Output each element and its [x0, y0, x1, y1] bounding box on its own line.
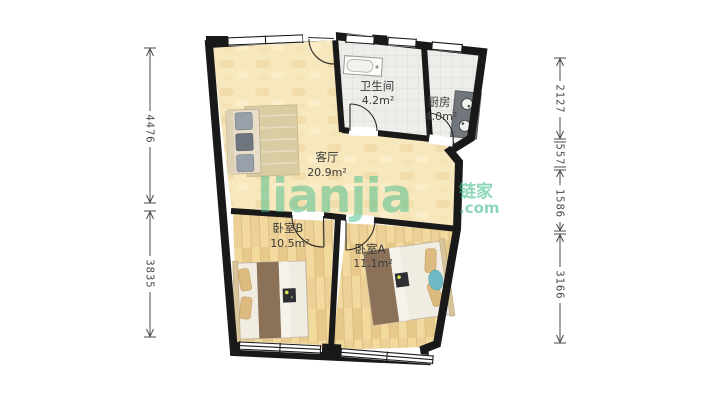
bedroom-b-area: 10.5m² [270, 237, 310, 250]
sofa-cushion [236, 154, 254, 172]
watermark: lianjia 链家 .com [257, 169, 500, 224]
dimension-right-2127: 2127 [554, 58, 567, 139]
dimension-right-3166: 3166 [554, 234, 567, 343]
wall-corner-post [206, 36, 228, 47]
bed-duvet [257, 262, 282, 339]
dimension-right-557: 557 [554, 142, 567, 167]
watermark-brand: lianjia [257, 169, 411, 224]
bathroom-label: 卫生间 [360, 79, 395, 93]
dim-value: 2127 [554, 84, 566, 113]
bed-tv [395, 272, 410, 288]
dimension-right-1586: 1586 [554, 170, 567, 231]
bedroom-a-label: 卧室A [355, 242, 386, 256]
watermark-domain-suffix: .com [459, 199, 500, 217]
dimension-left-4476: 4476 [144, 48, 157, 203]
dim-value: 3166 [554, 270, 566, 299]
sofa-cushion [236, 133, 254, 151]
floorplan-canvas: 客厅 20.9m² 卫生间 4.2m² 厨房 4.0m² 卧室B 10.5m² … [0, 0, 710, 400]
bathtub-group [343, 56, 382, 77]
kitchen-area: 4.0m² [425, 110, 458, 123]
bathtub-basin [347, 59, 374, 73]
dim-value: 4476 [144, 114, 156, 143]
bed-pillow [239, 296, 252, 319]
living-rug-sofa [226, 105, 299, 177]
bed-b [233, 259, 309, 341]
dim-value: 1586 [554, 189, 566, 218]
dim-value: 3835 [144, 259, 156, 288]
bed-tv [283, 288, 296, 302]
sofa-cushion [235, 112, 253, 130]
kitchen-label: 厨房 [428, 95, 451, 109]
bedroom-a-area: 11.1m² [353, 257, 393, 270]
wall-post [322, 344, 342, 357]
floorplan-svg: 客厅 20.9m² 卫生间 4.2m² 厨房 4.0m² 卧室B 10.5m² … [0, 0, 710, 400]
dim-value: 557 [554, 144, 566, 166]
bed-pillow [425, 249, 437, 273]
bathroom-area: 4.2m² [362, 94, 395, 107]
living-room-label: 客厅 [316, 150, 339, 164]
dimension-left-3835: 3835 [144, 211, 157, 337]
